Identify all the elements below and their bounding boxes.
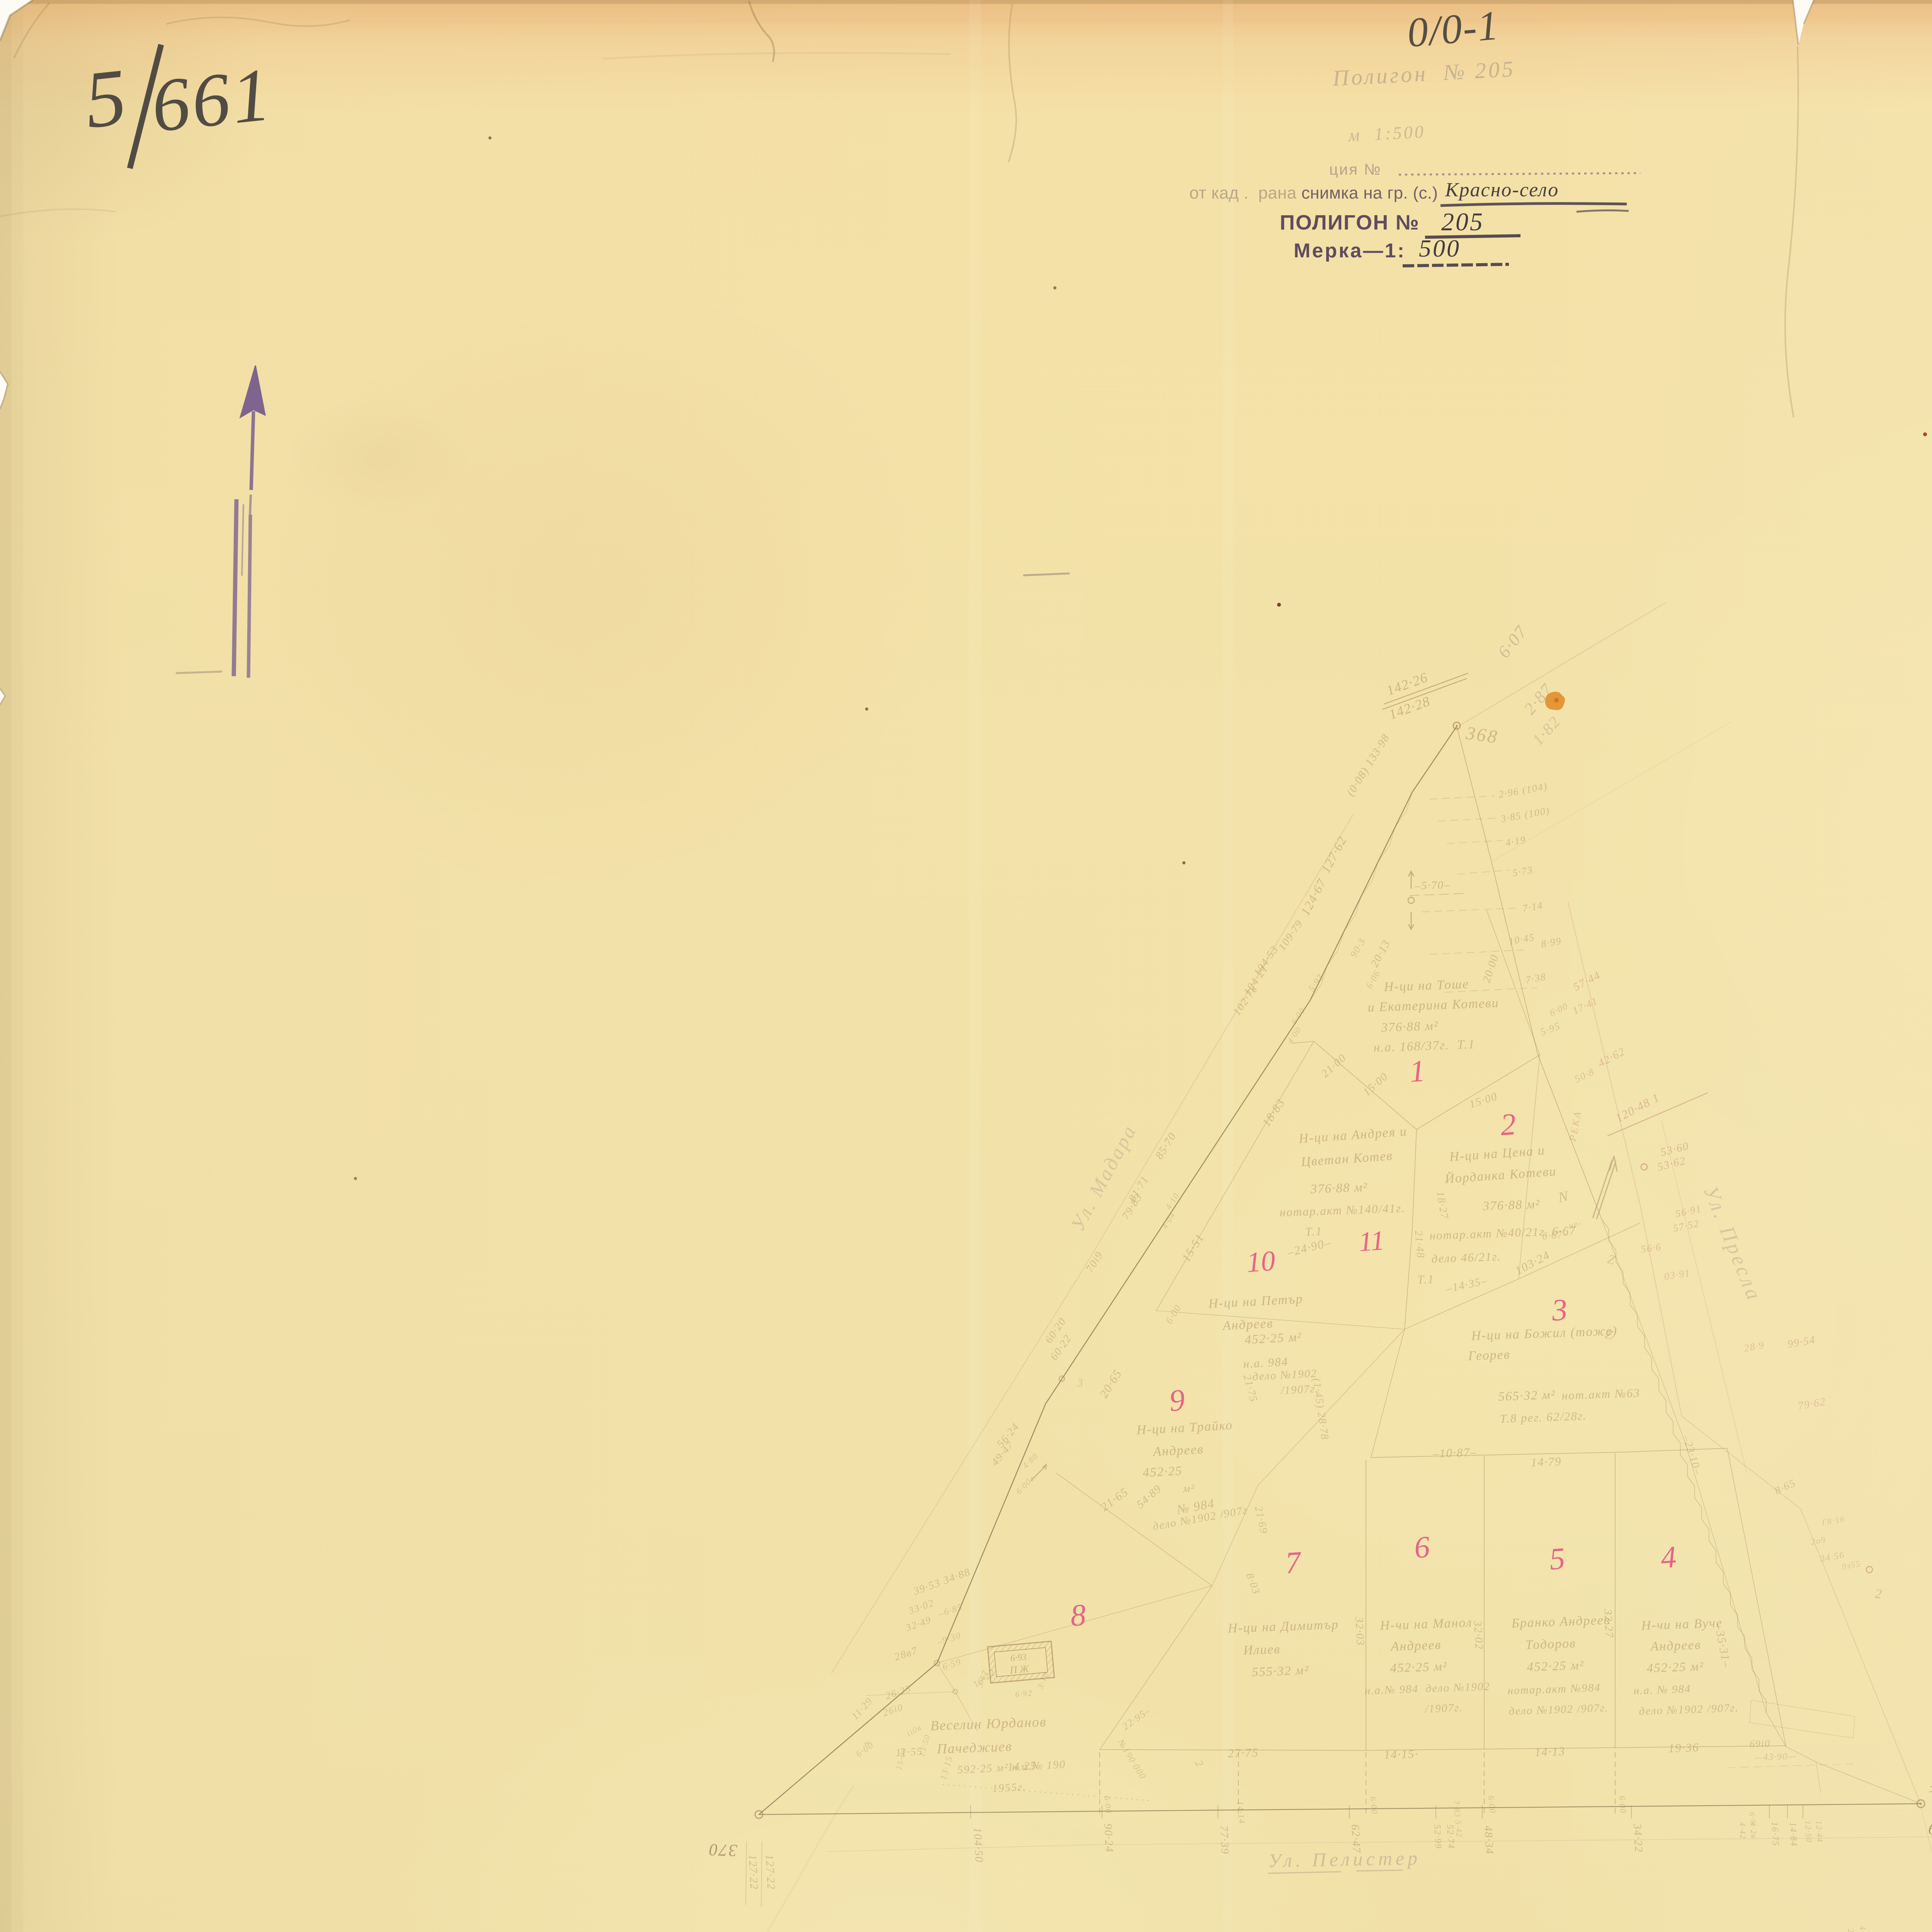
svg-text:ПОЛИГОН №: ПОЛИГОН № [1280, 211, 1422, 234]
svg-text:555·32 м²: 555·32 м² [1252, 1663, 1309, 1679]
svg-text:Т.1: Т.1 [1417, 1272, 1435, 1286]
svg-text:6: 6 [1413, 1530, 1431, 1565]
svg-text:3: 3 [1077, 1377, 1084, 1389]
svg-text:Тодоров: Тодоров [1525, 1636, 1576, 1652]
svg-text:452·25 м²: 452·25 м² [1390, 1660, 1447, 1675]
svg-text:м 1:500: м 1:500 [1347, 122, 1426, 145]
svg-text:370: 370 [708, 1840, 738, 1860]
svg-text:н.а. № 984: н.а. № 984 [1633, 1683, 1691, 1697]
svg-text:14·25: 14·25 [1007, 1759, 1037, 1773]
svg-text:77·39: 77·39 [1218, 1825, 1231, 1855]
svg-text:14·14: 14·14 [1235, 1801, 1247, 1824]
svg-text:4·2в: 4·2в [1748, 1822, 1759, 1839]
svg-text:Андреев: Андреев [1221, 1316, 1274, 1333]
svg-text:34·22: 34·22 [1631, 1823, 1645, 1853]
svg-text:–10·87–: –10·87– [1432, 1445, 1477, 1460]
svg-text:Андреев: Андреев [1390, 1638, 1442, 1654]
svg-text:452·25 м²: 452·25 м² [1646, 1660, 1704, 1675]
svg-text:14·13: 14·13 [1534, 1744, 1566, 1759]
svg-text:376·88 м²: 376·88 м² [1381, 1019, 1439, 1035]
svg-text:11: 11 [1358, 1225, 1386, 1257]
svg-text:2: 2 [1499, 1107, 1517, 1142]
svg-text:6·92: 6·92 [1015, 1688, 1033, 1699]
svg-text:19·36: 19·36 [1668, 1740, 1699, 1755]
svg-text:3: 3 [1550, 1293, 1568, 1328]
svg-text:6·93: 6·93 [1010, 1652, 1027, 1663]
svg-text:9: 9 [1168, 1383, 1186, 1418]
svg-text:104·50: 104·50 [971, 1827, 985, 1863]
svg-text:Н-ци на Тоше: Н-ци на Тоше [1383, 977, 1469, 994]
svg-text:5: 5 [1548, 1541, 1566, 1577]
svg-text:м²: м² [1182, 1482, 1196, 1495]
svg-text:Ул. Пелистер: Ул. Пелистер [1268, 1847, 1421, 1871]
svg-text:21·48: 21·48 [1412, 1230, 1427, 1259]
svg-text:12·44: 12·44 [1814, 1820, 1825, 1843]
svg-text:14·15·: 14·15· [1384, 1747, 1419, 1762]
svg-text:48·34: 48·34 [1482, 1825, 1496, 1855]
svg-text:Пачеджиев: Пачеджиев [936, 1738, 1012, 1757]
svg-text:52·74: 52·74 [1445, 1824, 1456, 1849]
svg-text:32·02: 32·02 [1471, 1620, 1485, 1650]
svg-text:8: 8 [1069, 1598, 1087, 1633]
svg-text:565·32 м²: 565·32 м² [1498, 1388, 1556, 1404]
svg-text:127·22: 127·22 [763, 1854, 777, 1890]
svg-text:Андреев: Андреев [1650, 1638, 1701, 1654]
svg-text:500: 500 [1419, 235, 1461, 262]
svg-text:452·25 м²: 452·25 м² [1527, 1658, 1584, 1674]
svg-text:6·00: 6·00 [1368, 1796, 1379, 1815]
svg-text:6·00: 6·00 [1486, 1795, 1498, 1814]
svg-text:90·24: 90·24 [1102, 1823, 1116, 1853]
svg-text:127·22: 127·22 [746, 1854, 760, 1890]
svg-text:32·03: 32·03 [1353, 1616, 1367, 1646]
svg-text:14·84: 14·84 [1787, 1822, 1799, 1847]
svg-text:16·75: 16·75 [1769, 1821, 1781, 1847]
svg-text:от кад . рана снимка на гр. (: от кад . рана снимка на гр. (с.) [1189, 184, 1439, 202]
svg-text:н.а. 984: н.а. 984 [1243, 1355, 1289, 1371]
svg-text:Т.1: Т.1 [1305, 1224, 1323, 1238]
svg-text:452·25: 452·25 [1143, 1464, 1183, 1480]
svg-text:4·42: 4·42 [1738, 1822, 1748, 1840]
svg-text:/1907г.: /1907г. [1424, 1702, 1463, 1715]
svg-text:Илиев: Илиев [1243, 1642, 1281, 1658]
svg-text:52·99: 52·99 [1432, 1824, 1443, 1849]
svg-text:П Ж: П Ж [1009, 1663, 1030, 1676]
svg-text:62·47: 62·47 [1349, 1824, 1363, 1854]
svg-text:6·67–: 6·67– [1542, 1228, 1569, 1242]
svg-text:Георев: Георев [1468, 1347, 1510, 1363]
svg-text:376·88 м²: 376·88 м² [1310, 1180, 1368, 1196]
svg-text:205: 205 [1441, 208, 1484, 236]
svg-text:12·50: 12·50 [1803, 1820, 1814, 1843]
svg-text:Н-чи на Вуче: Н-чи на Вуче [1641, 1616, 1723, 1633]
svg-text:10: 10 [1245, 1245, 1276, 1279]
svg-text:1955г.: 1955г. [992, 1781, 1027, 1795]
svg-text:27·75: 27·75 [1228, 1745, 1259, 1760]
svg-text:1: 1 [1408, 1054, 1426, 1089]
svg-text:376·88 м²: 376·88 м² [1482, 1197, 1540, 1213]
svg-text:32·27: 32·27 [1602, 1609, 1616, 1639]
svg-text:6·00: 6·00 [1617, 1795, 1628, 1814]
svg-text:Андреев: Андреев [1152, 1442, 1204, 1459]
svg-text:0/0-1: 0/0-1 [1405, 2, 1501, 56]
svg-text:11·55: 11·55 [895, 1745, 923, 1759]
svg-text:14·79: 14·79 [1531, 1454, 1562, 1469]
svg-text:Красно-село: Красно-село [1445, 179, 1559, 201]
svg-text:дело 46/21г.: дело 46/21г. [1431, 1250, 1501, 1265]
svg-text:ция №: ция № [1329, 161, 1382, 178]
svg-text:—43·90—: —43·90— [1753, 1751, 1797, 1763]
svg-text:4: 4 [1660, 1540, 1677, 1575]
svg-text:2: 2 [1874, 1587, 1883, 1602]
svg-text:6·00: 6·00 [1102, 1795, 1114, 1814]
svg-text:–5·70–: –5·70– [1414, 879, 1451, 892]
svg-text:661: 661 [148, 52, 276, 148]
svg-text:Мерка—1:: Мерка—1: [1294, 240, 1406, 262]
svg-text:нот.акт №63: нот.акт №63 [1561, 1386, 1640, 1402]
svg-text:69і0: 69і0 [1749, 1738, 1770, 1750]
